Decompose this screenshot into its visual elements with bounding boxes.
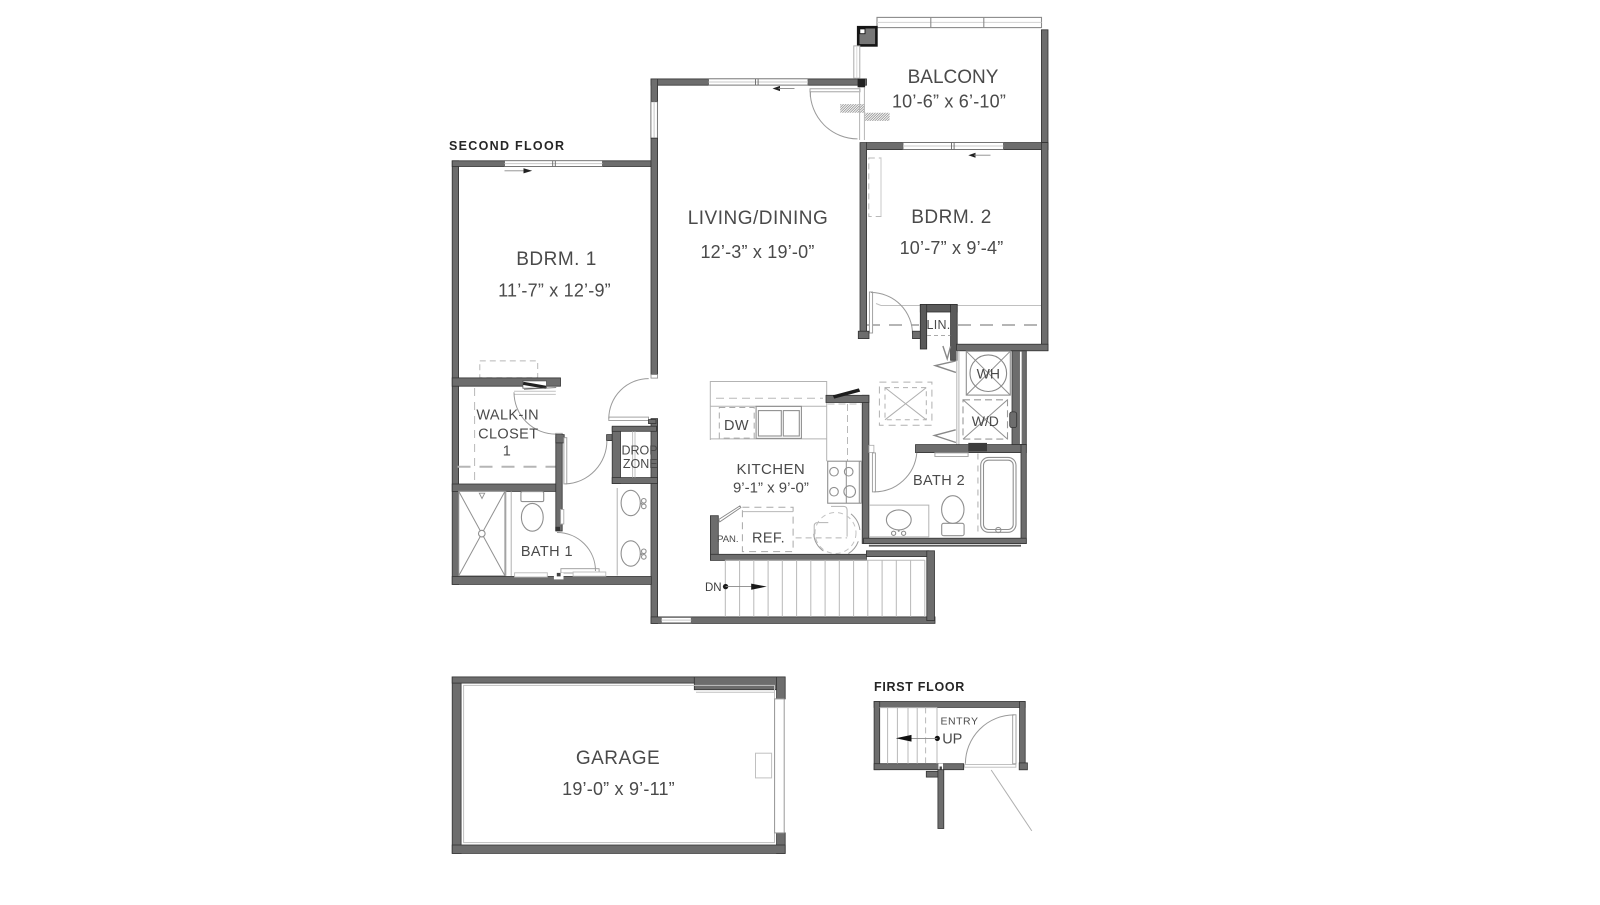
svg-text:BATH 1: BATH 1 [521, 544, 573, 560]
svg-text:W/D: W/D [972, 413, 999, 429]
svg-text:WH: WH [977, 366, 1000, 382]
svg-text:ENTRY: ENTRY [941, 716, 979, 728]
svg-text:FIRST FLOOR: FIRST FLOOR [874, 680, 965, 694]
svg-text:9’-1” x 9’-0”: 9’-1” x 9’-0” [733, 479, 809, 496]
svg-text:DW: DW [724, 418, 749, 434]
svg-text:PAN.: PAN. [717, 534, 738, 545]
svg-text:KITCHEN: KITCHEN [736, 461, 805, 478]
svg-text:SECOND FLOOR: SECOND FLOOR [449, 139, 565, 153]
svg-text:BALCONY: BALCONY [908, 67, 999, 88]
svg-text:12’-3” x 19’-0”: 12’-3” x 19’-0” [700, 242, 814, 262]
svg-text:GARAGE: GARAGE [576, 748, 660, 769]
svg-text:LIVING/DINING: LIVING/DINING [688, 208, 829, 229]
svg-text:1: 1 [503, 443, 511, 459]
svg-text:CLOSET: CLOSET [478, 426, 538, 442]
svg-text:UP: UP [942, 731, 962, 747]
svg-text:DN: DN [705, 582, 722, 594]
svg-text:BDRM. 1: BDRM. 1 [516, 249, 597, 270]
svg-text:ZONE: ZONE [623, 457, 658, 471]
svg-text:REF.: REF. [752, 531, 785, 547]
svg-text:11’-7” x 12’-9”: 11’-7” x 12’-9” [498, 281, 611, 301]
svg-text:10’-6” x 6’-10”: 10’-6” x 6’-10” [892, 91, 1006, 111]
svg-text:WALK-IN: WALK-IN [476, 407, 539, 423]
svg-text:19’-0” x 9’-11”: 19’-0” x 9’-11” [562, 779, 675, 799]
svg-text:10’-7” x 9’-4”: 10’-7” x 9’-4” [900, 238, 1004, 258]
svg-text:BATH 2: BATH 2 [913, 473, 965, 489]
svg-text:DROP: DROP [621, 443, 657, 457]
svg-text:LIN.: LIN. [926, 318, 950, 332]
svg-text:BDRM. 2: BDRM. 2 [911, 207, 992, 228]
